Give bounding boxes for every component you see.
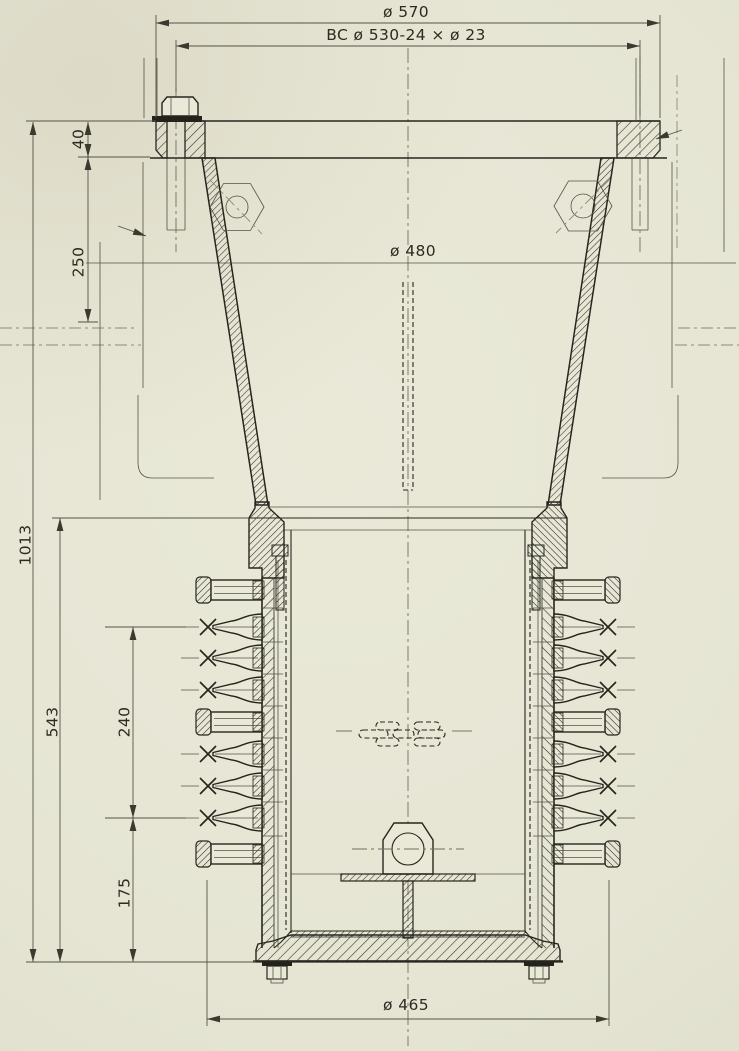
cooling-nozzle bbox=[552, 677, 635, 703]
dim-upper-depth: 250 bbox=[69, 247, 87, 278]
cooling-nozzle bbox=[181, 677, 264, 703]
cooling-stud bbox=[552, 577, 620, 603]
dim-bore-diameter: ø 480 bbox=[390, 242, 436, 260]
cooling-stud bbox=[552, 841, 620, 867]
dim-overall-length: 1013 bbox=[16, 524, 34, 565]
bottom-plate bbox=[253, 931, 563, 962]
cooling-stud bbox=[552, 709, 620, 735]
cooling-stud bbox=[196, 577, 264, 603]
dim-top-outer-diameter: ø 570 bbox=[383, 3, 429, 21]
lower-cylinder-left bbox=[181, 502, 292, 983]
cooling-nozzle bbox=[552, 741, 635, 767]
dim-bottom-diameter: ø 465 bbox=[383, 996, 429, 1014]
cooling-nozzle bbox=[552, 614, 635, 640]
cooling-nozzle bbox=[552, 805, 635, 831]
flange-bolt bbox=[152, 97, 202, 122]
cooling-nozzle bbox=[181, 614, 264, 640]
cooling-stud bbox=[196, 709, 264, 735]
dim-lower-length: 543 bbox=[43, 707, 61, 738]
cooling-nozzle bbox=[181, 741, 264, 767]
lug-base-plate bbox=[341, 874, 475, 881]
drawing-sheet: ø 570 BC ø 530-24 × ø 23 ø 480 40 250 10… bbox=[0, 0, 739, 1051]
dim-bolt-circle: BC ø 530-24 × ø 23 bbox=[326, 26, 486, 44]
cooling-nozzle bbox=[552, 773, 635, 799]
hidden-port-symbols bbox=[336, 722, 472, 746]
cooling-nozzle bbox=[181, 805, 264, 831]
support-web bbox=[403, 881, 413, 938]
dim-nozzle-span: 240 bbox=[115, 707, 133, 738]
cooling-stud bbox=[196, 841, 264, 867]
cooling-nozzle bbox=[552, 645, 635, 671]
lower-cylinder-right bbox=[524, 502, 635, 983]
bottom-bolt bbox=[262, 961, 292, 983]
dim-bottom-offset: 175 bbox=[115, 878, 133, 909]
cooling-nozzle bbox=[181, 645, 264, 671]
lifting-lug bbox=[352, 823, 464, 874]
top-flange bbox=[150, 121, 667, 158]
dim-flange-thickness: 40 bbox=[69, 129, 87, 150]
cooling-nozzle bbox=[181, 773, 264, 799]
cylinder-liner-section-drawing: ø 570 BC ø 530-24 × ø 23 ø 480 40 250 10… bbox=[0, 0, 739, 1051]
